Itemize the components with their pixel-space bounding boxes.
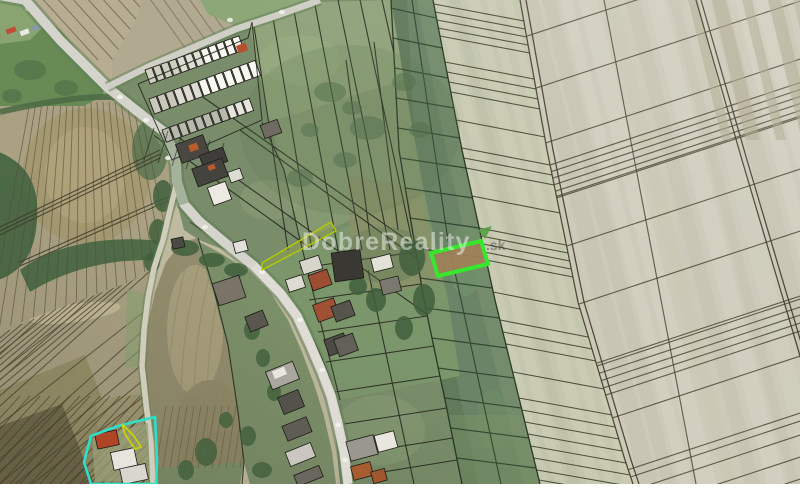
svg-text:.sk: .sk <box>486 237 506 253</box>
svg-text:DobreReality: DobreReality <box>302 228 471 256</box>
